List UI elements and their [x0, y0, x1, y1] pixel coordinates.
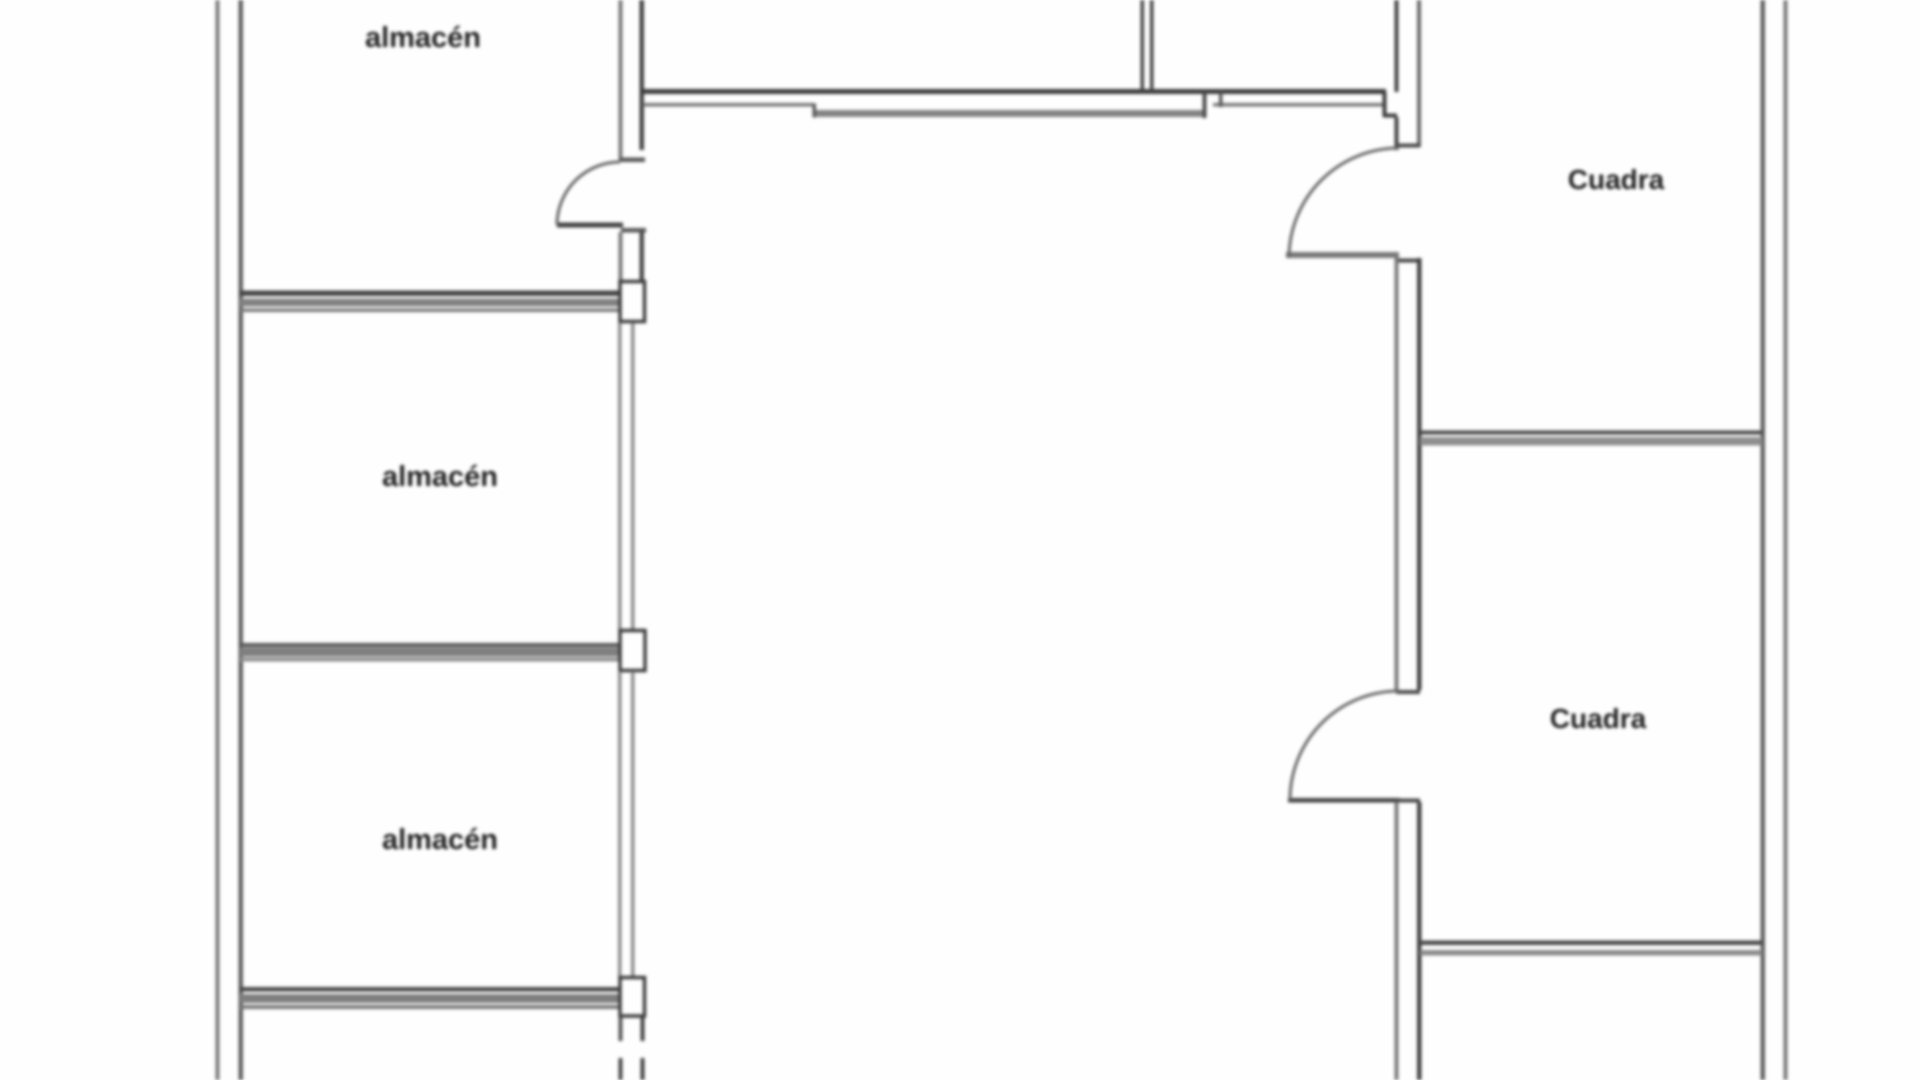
- svg-text:Cuadra: Cuadra: [1550, 703, 1647, 734]
- svg-text:Cuadra: Cuadra: [1568, 164, 1665, 195]
- svg-text:almacén: almacén: [382, 461, 498, 493]
- svg-text:almacén: almacén: [365, 22, 481, 54]
- svg-text:almacén: almacén: [382, 824, 498, 856]
